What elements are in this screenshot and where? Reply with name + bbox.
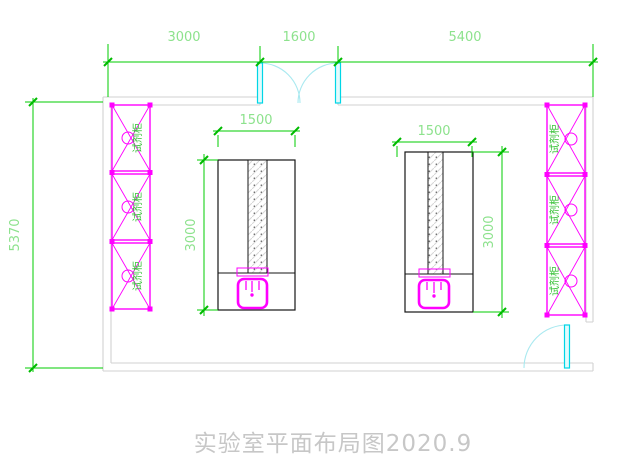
cabinet-label: 试剂柜: [131, 123, 144, 153]
door-leaf: [565, 325, 570, 368]
dimension-top: 3000 1600 5400: [103, 30, 598, 97]
dim-bench-left-width: 1500: [239, 113, 272, 128]
cabinet-column-right: 试剂柜 试剂柜 试剂柜: [545, 103, 588, 318]
door-leaf-right: [336, 63, 341, 103]
dim-bench-right-width: 1500: [417, 124, 450, 139]
sink-left-drain: [250, 293, 253, 296]
bench-right-hatch-strip: [428, 152, 443, 274]
dim-top-middle: 1600: [282, 30, 315, 45]
dim-top-right: 5400: [448, 30, 481, 45]
reagent-cabinet: 试剂柜: [112, 174, 150, 240]
bench-left-hatch-strip: [248, 160, 267, 273]
cabinet-column-left: 试剂柜 试剂柜 试剂柜: [110, 103, 153, 312]
door-bottom-right: [524, 325, 570, 368]
door-leaf-left: [258, 63, 263, 103]
drawing-title: 实验室平面布局图2020.9: [194, 424, 472, 458]
cabinet-label: 试剂柜: [548, 195, 561, 225]
reagent-cabinet: 试剂柜: [547, 105, 585, 173]
cabinet-label: 试剂柜: [548, 266, 561, 296]
dimension-bench-left-width: 1500: [213, 113, 300, 147]
cabinet-label: 试剂柜: [131, 261, 144, 291]
cabinet-label: 试剂柜: [131, 192, 144, 222]
dim-overall-height: 5370: [8, 218, 23, 251]
dim-bench-right-length: 3000: [482, 215, 497, 248]
sink-right-drain: [432, 294, 435, 297]
reagent-cabinet: 试剂柜: [547, 247, 585, 315]
dim-top-left: 3000: [167, 30, 200, 45]
double-door-top: [258, 63, 341, 103]
room-walls: [103, 97, 593, 371]
reagent-cabinet: 试剂柜: [547, 176, 585, 244]
cad-floorplan-view: 3000 1600 5400 5370 1500: [0, 0, 619, 469]
cabinet-label: 试剂柜: [548, 124, 561, 154]
dimension-bench-right-length: 3000: [473, 146, 509, 318]
dim-bench-left-length: 3000: [184, 218, 199, 251]
reagent-cabinet: 试剂柜: [112, 243, 150, 309]
floorplan-canvas: 3000 1600 5400 5370 1500: [0, 0, 619, 469]
reagent-cabinet: 试剂柜: [112, 105, 150, 171]
dimension-bench-left-length: 3000: [184, 154, 218, 316]
dimension-left: 5370: [8, 98, 103, 372]
